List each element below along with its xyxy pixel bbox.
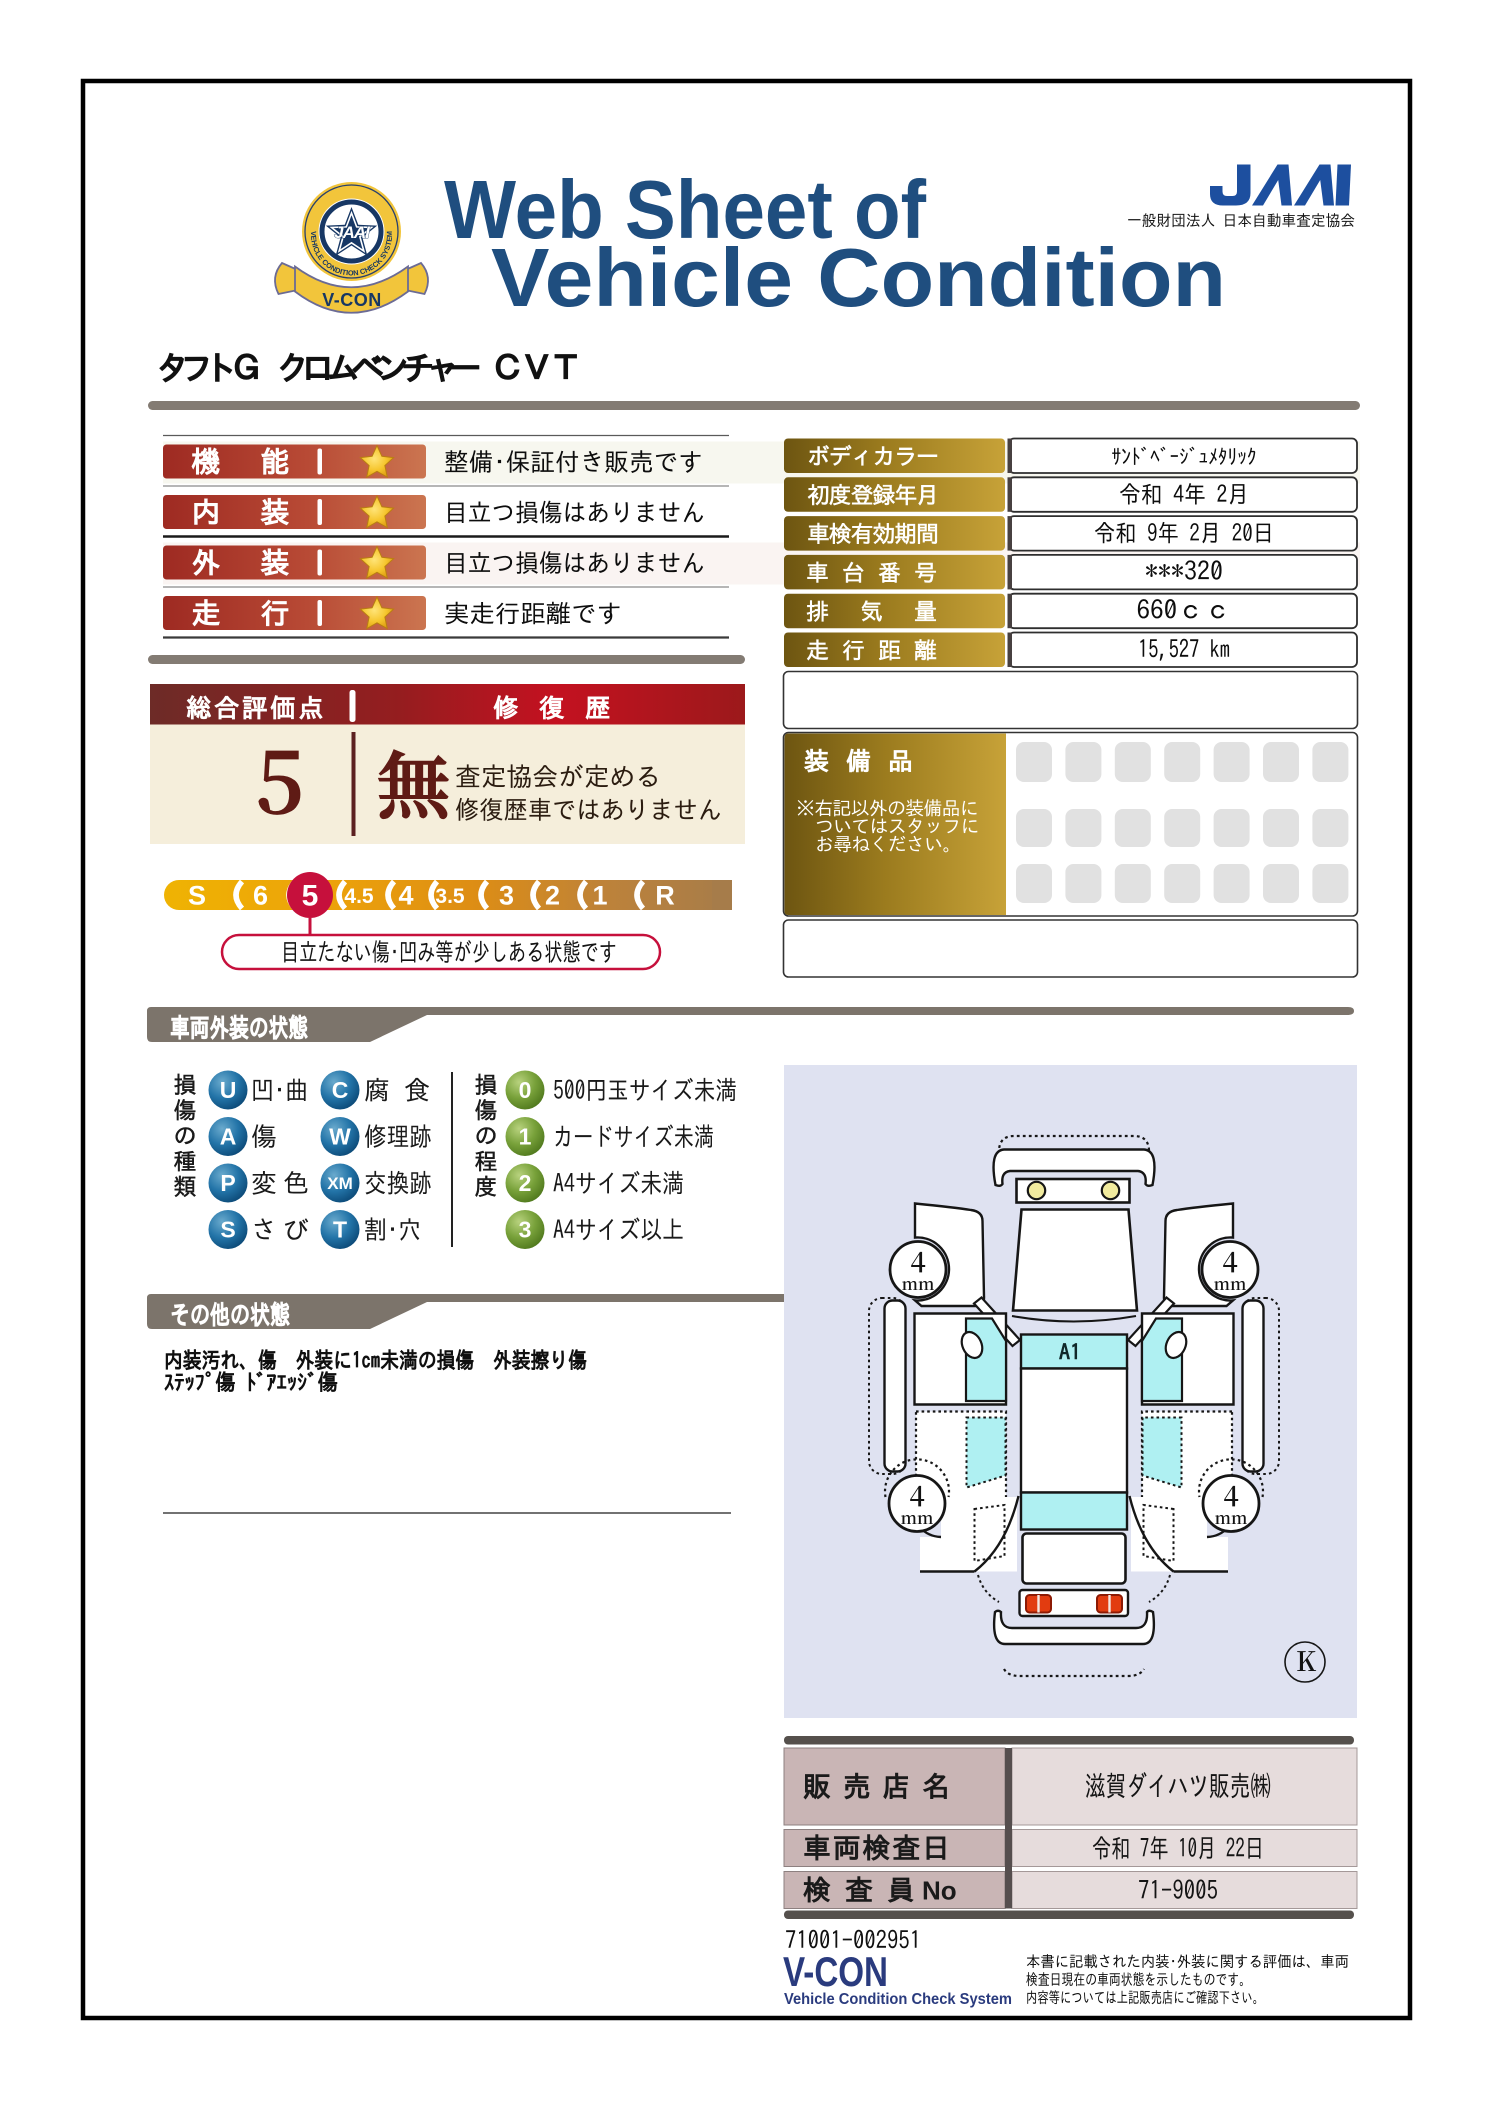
svg-text:S: S xyxy=(220,1217,235,1243)
svg-text:P: P xyxy=(220,1170,235,1196)
svg-text:3: 3 xyxy=(519,1217,532,1243)
svg-text:S: S xyxy=(188,881,206,911)
svg-text:4: 4 xyxy=(398,881,413,911)
svg-text:A: A xyxy=(220,1124,237,1150)
svg-text:4.5: 4.5 xyxy=(344,885,374,908)
svg-text:No: No xyxy=(922,1876,957,1906)
svg-text:2: 2 xyxy=(519,1170,532,1196)
svg-text:3.5: 3.5 xyxy=(435,885,465,908)
svg-text:0: 0 xyxy=(519,1077,532,1103)
svg-text:Vehicle Condition: Vehicle Condition xyxy=(491,231,1226,324)
svg-text:V-CON: V-CON xyxy=(322,290,382,310)
svg-text:C: C xyxy=(332,1077,349,1103)
svg-text:T: T xyxy=(333,1217,347,1243)
svg-text:6: 6 xyxy=(253,881,268,911)
svg-text:5: 5 xyxy=(302,880,319,913)
svg-text:XM: XM xyxy=(327,1174,353,1193)
svg-text:U: U xyxy=(220,1077,237,1103)
svg-text:JAAI: JAAI xyxy=(334,223,371,242)
svg-text:2: 2 xyxy=(545,881,560,911)
svg-text:3: 3 xyxy=(499,881,514,911)
svg-text:Vehicle Condition Check System: Vehicle Condition Check System xyxy=(784,1991,1012,2008)
svg-text:V-CON: V-CON xyxy=(783,1948,888,1995)
svg-text:1: 1 xyxy=(592,881,607,911)
svg-text:R: R xyxy=(655,881,675,911)
svg-text:W: W xyxy=(329,1124,351,1150)
svg-text:1: 1 xyxy=(519,1124,532,1150)
